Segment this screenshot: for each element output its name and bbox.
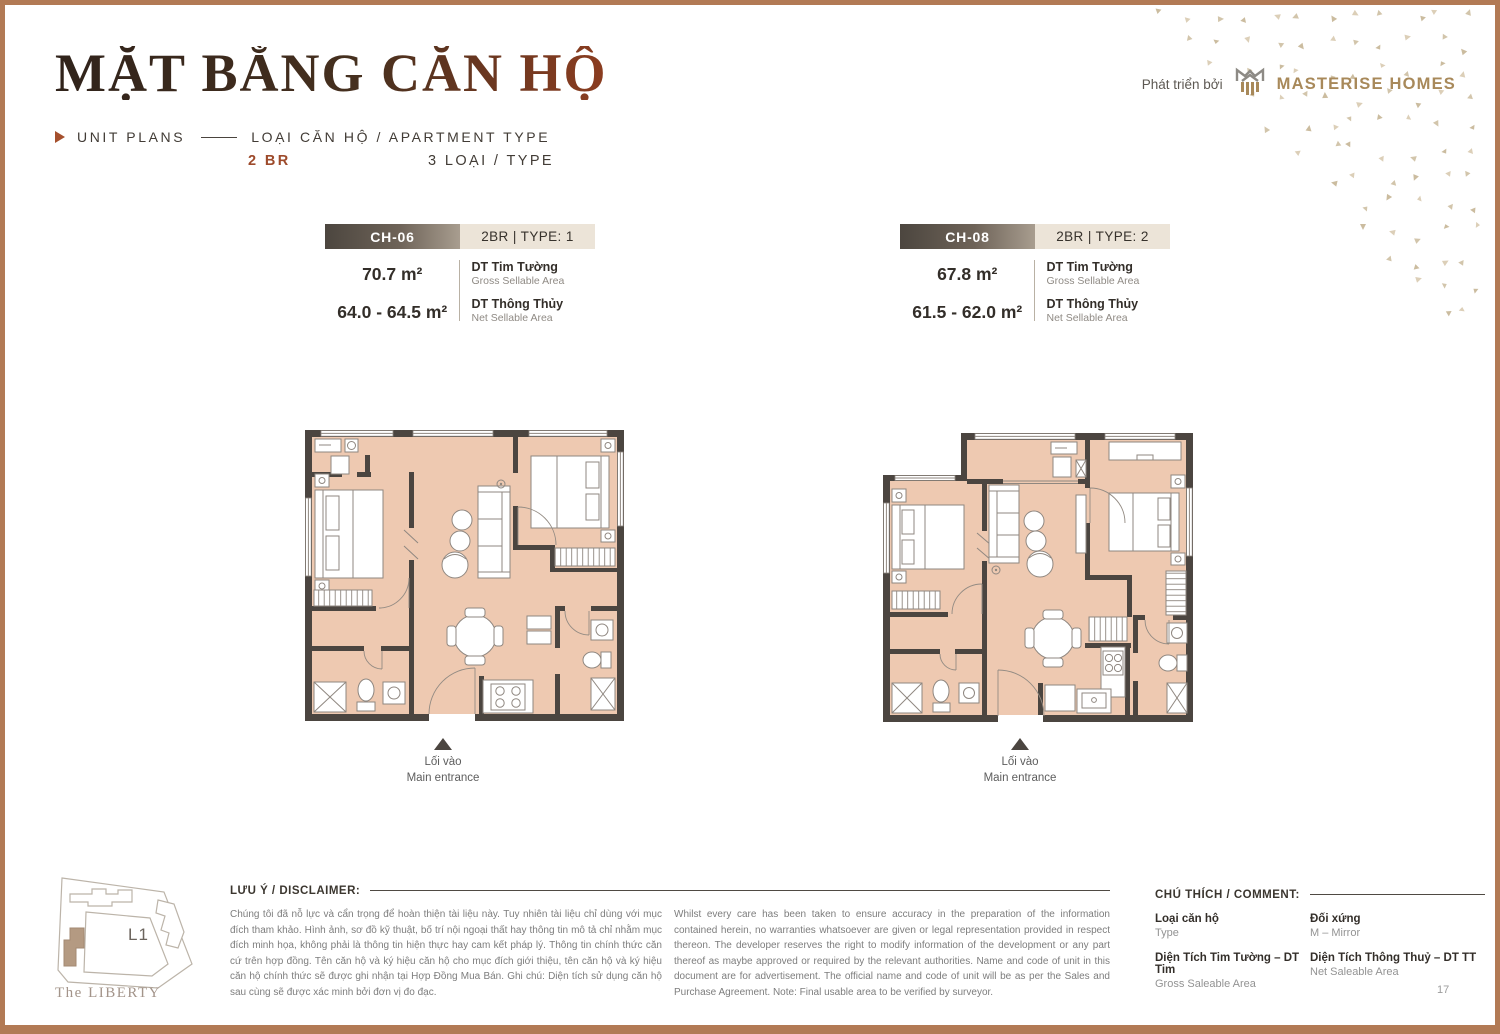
legend-item: Diện Tích Tim Tường – DT Tim Gross Salea… xyxy=(1155,952,1310,990)
developer-block: Phát triển bởi MASTERISE HOMES xyxy=(1142,64,1456,105)
entrance-label-vn: Lối vào xyxy=(373,754,513,770)
net-area-value: 61.5 - 62.0 m² xyxy=(900,302,1034,323)
unit-type-badge: 2BR | TYPE: 1 xyxy=(460,224,595,249)
net-area-sublabel: Net Sellable Area xyxy=(471,312,595,324)
developer-prefix-label: Phát triển bởi xyxy=(1142,77,1223,92)
brochure-page: MẶT BẰNG CĂN HỘ UNIT PLANS LOẠI CĂN HỘ /… xyxy=(0,0,1500,1034)
unit-card-ch06: CH-06 2BR | TYPE: 1 70.7 m² 64.0 - 64.5 … xyxy=(325,224,595,324)
type-count-label: 3 LOẠI / TYPE xyxy=(428,153,554,169)
legend-section: CHÚ THÍCH / COMMENT: Loại căn hộ Type Đố… xyxy=(1155,889,1485,990)
legend-heading: CHÚ THÍCH / COMMENT: xyxy=(1155,889,1300,901)
gross-area-label: DT Tim Tường xyxy=(471,260,595,274)
gross-area-value: 70.7 m² xyxy=(325,264,459,285)
disclaimer-text-en: Whilst every care has been taken to ensu… xyxy=(674,907,1110,1000)
site-block-label: L1 xyxy=(128,925,149,945)
floor-plan-ch08 xyxy=(883,433,1193,723)
unit-area-info: 70.7 m² 64.0 - 64.5 m² DT Tim Tường Gros… xyxy=(325,257,595,324)
legend-item-label: Diện Tích Tim Tường – DT Tim xyxy=(1155,952,1310,976)
bedroom-count-label: 2 BR xyxy=(248,153,291,169)
net-area-value: 64.0 - 64.5 m² xyxy=(325,302,459,323)
page-number: 17 xyxy=(1437,984,1449,996)
legend-item-label: Diện Tích Thông Thuỷ – DT TT xyxy=(1310,952,1485,964)
disclaimer-text-vn: Chúng tôi đã nỗ lực và cẩn trọng để hoàn… xyxy=(230,907,662,1000)
unit-code-badge: CH-06 xyxy=(325,224,460,249)
subtitle-row: UNIT PLANS LOẠI CĂN HỘ / APARTMENT TYPE xyxy=(55,129,550,145)
disclaimer-heading: LƯU Ý / DISCLAIMER: xyxy=(230,885,360,897)
apartment-type-label: LOẠI CĂN HỘ / APARTMENT TYPE xyxy=(251,129,550,145)
project-name-label: The LIBERTY xyxy=(55,985,161,1002)
heading-rule xyxy=(1310,894,1485,895)
gross-area-value: 67.8 m² xyxy=(900,264,1034,285)
entrance-label-vn: Lối vào xyxy=(950,754,1090,770)
entrance-arrow-icon xyxy=(434,738,452,750)
subtitle-row-2: 2 BR 3 LOẠI / TYPE xyxy=(248,153,554,169)
disclaimer-section: LƯU Ý / DISCLAIMER: Chúng tôi đã nỗ lực … xyxy=(230,885,1110,1000)
legend-item-sub: M – Mirror xyxy=(1310,927,1485,939)
net-area-label: DT Thông Thủy xyxy=(471,297,595,311)
masterise-logo-icon xyxy=(1232,64,1268,105)
entrance-label-en: Main entrance xyxy=(950,770,1090,786)
unit-code-badge: CH-08 xyxy=(900,224,1035,249)
heading-rule xyxy=(370,890,1110,891)
legend-item-label: Loại căn hộ xyxy=(1155,913,1310,925)
legend-item: Loại căn hộ Type xyxy=(1155,913,1310,939)
entrance-label-en: Main entrance xyxy=(373,770,513,786)
legend-item-sub: Net Saleable Area xyxy=(1310,966,1485,978)
legend-item: Diện Tích Thông Thuỷ – DT TT Net Saleabl… xyxy=(1310,952,1485,990)
legend-item-label: Đối xứng xyxy=(1310,913,1485,925)
unit-header-bar: CH-06 2BR | TYPE: 1 xyxy=(325,224,595,249)
floor-plan-ch06 xyxy=(305,430,625,722)
entrance-arrow-icon xyxy=(1011,738,1029,750)
kicker-label: UNIT PLANS xyxy=(77,129,185,145)
divider-dash xyxy=(201,137,237,138)
page-title: MẶT BẰNG CĂN HỘ xyxy=(55,46,608,100)
legend-item: Đối xứng M – Mirror xyxy=(1310,913,1485,939)
entrance-caption-ch06: Lối vào Main entrance xyxy=(373,738,513,786)
legend-item-sub: Gross Saleable Area xyxy=(1155,978,1310,990)
arrow-bullet-icon xyxy=(55,131,65,143)
developer-name-label: MASTERISE HOMES xyxy=(1277,75,1456,94)
legend-item-sub: Type xyxy=(1155,927,1310,939)
gross-area-sublabel: Gross Sellable Area xyxy=(471,275,595,287)
entrance-caption-ch08: Lối vào Main entrance xyxy=(950,738,1090,786)
